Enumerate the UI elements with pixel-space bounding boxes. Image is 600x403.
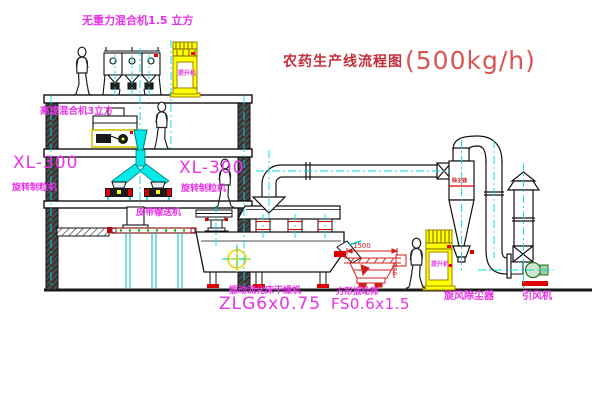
label-cyclone: 旋风除尘器 (444, 292, 494, 303)
exhaust-duct (253, 162, 451, 213)
label-granulator-right-name: 旋转制粒机 (181, 185, 226, 194)
label-fan: 引风机 (522, 292, 552, 303)
label-high-speed-mixer: 高速混合机3立方 (40, 107, 113, 117)
flow-diagram-canvas: 农药生产线流程图 (500kg/h) 无重力混合机1.5 立方 高速混合机3立方… (0, 0, 600, 403)
dim-screen-height: 350 (390, 264, 396, 275)
induced-draft-fan-machine (511, 262, 548, 286)
tag-cyclone: 除尘器 (452, 179, 467, 184)
tag-elevator-1: 提升机 (178, 71, 196, 77)
label-granulator-right-model: XL-300 (179, 160, 244, 178)
label-granulator-left-name: 旋转制粒机 (12, 184, 57, 193)
label-granulator-left-model: XL-300 (13, 155, 78, 173)
bucket-elevator-2 (423, 230, 455, 290)
diagram-title: 农药生产线流程图 (500kg/h) (283, 46, 536, 75)
person-figure-2nd-floor (152, 102, 171, 149)
person-figure-roof (73, 47, 92, 95)
granulator-left-machine (105, 182, 133, 201)
belt-conveyor-machine (107, 227, 196, 288)
label-belt-conveyor: 皮带输送机 (136, 209, 181, 218)
dim-screen-width: 1500 (353, 243, 371, 250)
person-figure-ground (406, 238, 426, 288)
tag-elevator-2: 提升机 (431, 262, 449, 268)
label-screen-model: FS0.6x1.5 (331, 297, 410, 313)
title-capacity: (500kg/h) (405, 46, 536, 75)
label-dryer-model: ZLG6x0.75 (219, 296, 321, 314)
label-gravity-mixer: 无重力混合机1.5 立方 (82, 15, 193, 27)
title-chinese: 农药生产线流程图 (283, 51, 403, 71)
granulator-right-machine (144, 182, 172, 201)
